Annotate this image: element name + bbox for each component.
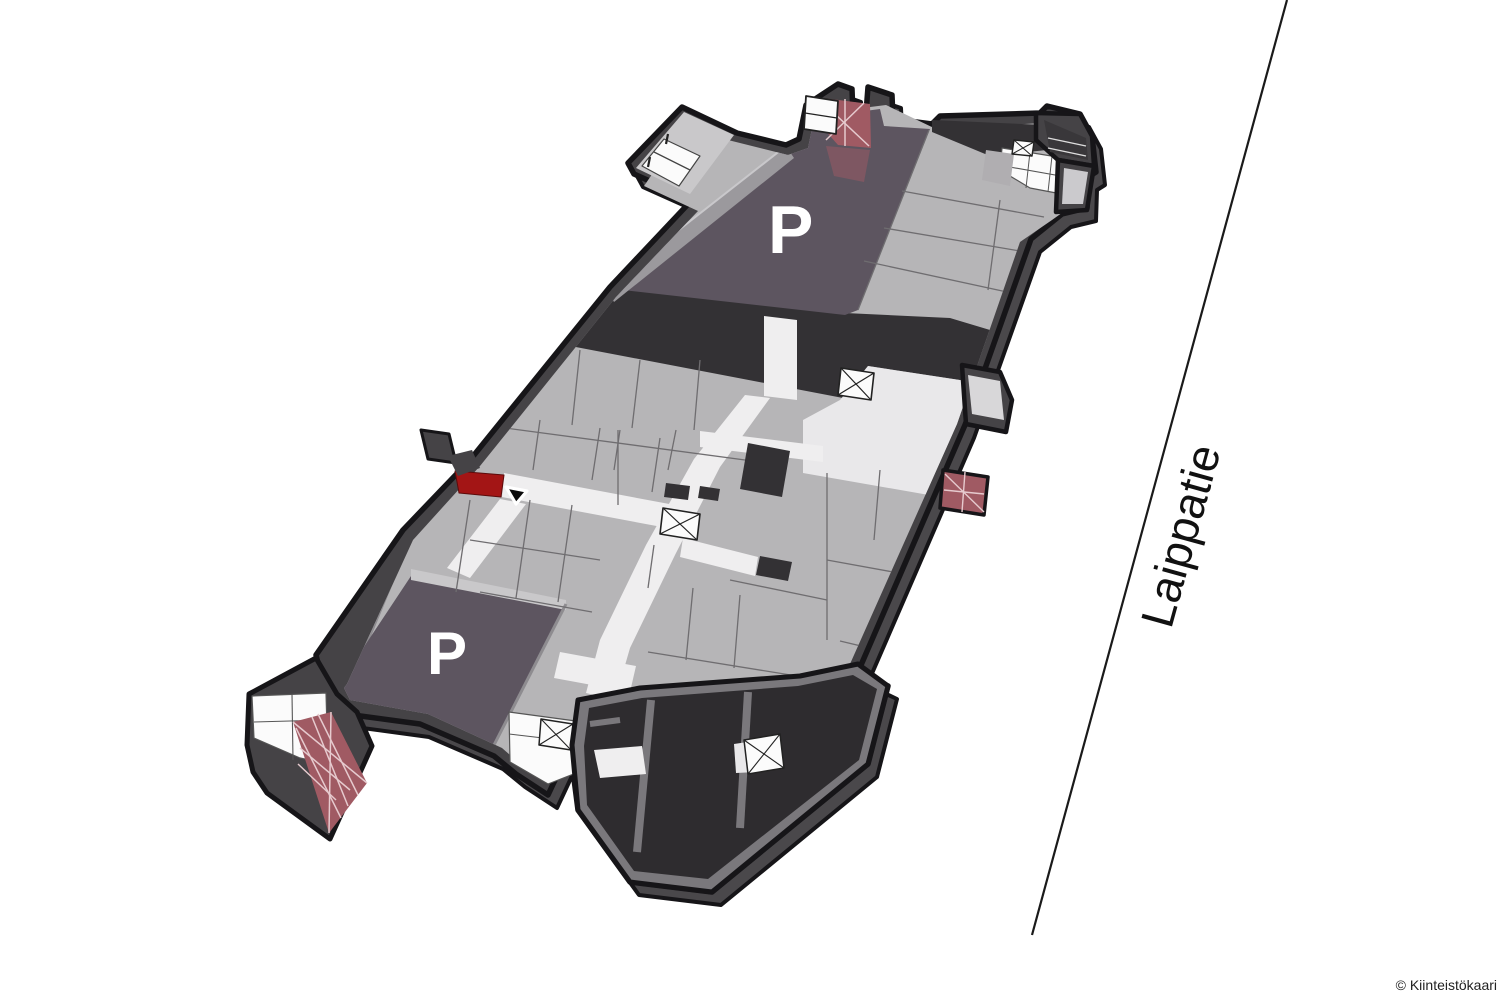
svg-text:© Kiinteistökaari: © Kiinteistökaari: [1396, 977, 1497, 993]
svg-text:P: P: [427, 620, 467, 687]
svg-text:P: P: [768, 192, 813, 268]
